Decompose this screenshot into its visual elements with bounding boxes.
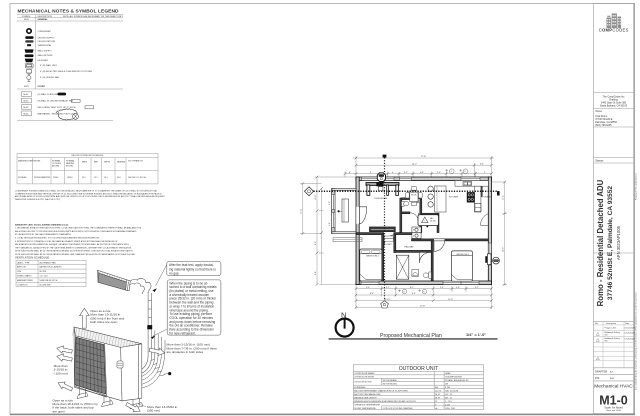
svg-text:OUTDOOR UNIT: OUTDOOR UNIT <box>399 366 438 372</box>
svg-text:70lb, 16 OZ (R): 70lb, 16 OZ (R) <box>445 390 458 392</box>
svg-text:M-04: M-04 <box>24 113 30 115</box>
svg-text:Owner: Owner <box>595 110 602 113</box>
svg-text:HSPF2: HSPF2 <box>104 162 110 164</box>
svg-text:3'-6": 3'-6" <box>329 201 331 205</box>
svg-text:THERMOSTAT: THERMOSTAT <box>38 44 53 47</box>
svg-text:27'-8": 27'-8" <box>421 156 426 158</box>
svg-text:30k BTU: 30k BTU <box>430 221 436 223</box>
svg-text:VOLT PHASE HZ: VOLT PHASE HZ <box>128 160 144 163</box>
svg-text:FURNISHED: FURNISHED <box>354 387 366 389</box>
svg-text:5'-6": 5'-6" <box>456 287 460 289</box>
svg-text:8'-2": 8'-2" <box>410 287 414 289</box>
svg-text:M-01: M-01 <box>24 94 30 96</box>
svg-text:VENTILATION SCHEDULE: VENTILATION SCHEDULE <box>15 256 49 260</box>
svg-text:Sheet size 24x36: Sheet size 24x36 <box>606 409 621 412</box>
svg-text:GREE: GREE <box>445 373 451 375</box>
svg-text:IN, FT: IN, FT <box>435 394 441 396</box>
svg-text:MODEL: MODEL <box>34 161 41 163</box>
svg-text:1/4" = 1'-0": 1/4" = 1'-0" <box>466 332 486 337</box>
svg-text:CONTROLLER BRAND: CONTROLLER BRAND <box>354 372 375 375</box>
svg-text:EACH DWELLING UNIT TO PROVIDE: EACH DWELLING UNIT TO PROVIDE WHOLE-BUIL… <box>15 230 137 233</box>
svg-text:1130 / 1136: 1130 / 1136 <box>445 408 455 410</box>
svg-text:37746 52ndSt E, Palmdale, CA 9: 37746 52ndSt E, Palmdale, CA 93552 <box>607 186 614 300</box>
svg-text:8'-2": 8'-2" <box>315 241 317 245</box>
svg-text:27'-8": 27'-8" <box>420 305 425 307</box>
svg-text:13000: 13000 <box>67 177 72 179</box>
svg-text:M-00: M-00 <box>24 19 30 21</box>
svg-text:OTHER: OTHER <box>38 86 46 88</box>
svg-text:OPERATION TEMPERATURE: OPERATION TEMPERATURE <box>354 403 380 406</box>
svg-text:P.M.: P.M. <box>595 376 600 380</box>
svg-text:M-05: M-05 <box>24 86 30 88</box>
svg-text:MANUFACTURER: MANUFACTURER <box>18 160 34 163</box>
svg-text:LIVS24HP230V1AO: LIVS24HP230V1AO <box>445 376 463 379</box>
svg-text:4" (N) CEILING FAN: 4" (N) CEILING FAN <box>40 76 59 79</box>
svg-text:14'-2": 14'-2" <box>502 247 504 252</box>
svg-text:Stamps: Stamps <box>595 160 604 163</box>
svg-text:INDOOR FIXTURE UNIT SCHEDULE: INDOOR FIXTURE UNIT SCHEDULE <box>72 155 105 157</box>
svg-text:3/8" - 25: 3/8" - 25 <box>445 397 452 399</box>
svg-text:KITCHEN: KITCHEN <box>449 197 459 199</box>
svg-text:Progress Set: Progress Set <box>605 327 617 330</box>
svg-text:RELOCATED VENT DUCT UP TO ROOF: RELOCATED VENT DUCT UP TO ROOF <box>38 106 77 109</box>
svg-text:3'-1": 3'-1" <box>386 287 390 289</box>
svg-text:9'-4": 9'-4" <box>366 287 370 289</box>
svg-text:SOUND TEMPERATURE: SOUND TEMPERATURE <box>354 407 376 410</box>
svg-text:Scale: As Noted: Scale: As Noted <box>604 405 623 409</box>
svg-text:80 CFM: 80 CFM <box>40 271 47 273</box>
svg-text:FACTORY REFRIGERANT CHARGE (FO: FACTORY REFRIGERANT CHARGE (FOR UP TO 25… <box>354 389 408 392</box>
svg-text:EER: EER <box>94 162 99 164</box>
svg-text:5 - 75 ft: 5 - 75 ft <box>445 400 452 403</box>
svg-text:3'-6": 3'-6" <box>329 222 331 226</box>
svg-text:01.26.2023: 01.26.2023 <box>625 333 636 335</box>
svg-text:12.5: 12.5 <box>94 177 98 179</box>
svg-text:No.: No. <box>595 323 599 325</box>
svg-text:MECHANICAL NOTES & SYMBOL LEGE: MECHANICAL NOTES & SYMBOL LEGEND <box>18 9 120 15</box>
svg-text:6'-8": 6'-8" <box>370 293 374 295</box>
svg-text:(N) WALL PLATFORM: (N) WALL PLATFORM <box>38 93 59 96</box>
svg-text:Building & Safety: Building & Safety <box>605 331 620 334</box>
svg-text:POLAND, BRUSHLESS DC: POLAND, BRUSHLESS DC <box>445 379 469 382</box>
svg-text:SONES / WATTS: SONES / WATTS <box>17 275 32 278</box>
svg-text:OUTDOOR MOTOR: OUTDOOR MOTOR <box>354 382 372 384</box>
svg-text:12000: 12000 <box>53 177 58 179</box>
svg-text:SYMBOL: SYMBOL <box>22 16 32 18</box>
svg-text:LABEL - TYPE: LABEL - TYPE <box>17 261 30 264</box>
svg-text:HALLWAY: HALLWAY <box>405 245 415 248</box>
svg-text:WALL SUPPLY: WALL SUPPLY <box>38 50 53 53</box>
svg-text:10'-4": 10'-4" <box>315 195 317 200</box>
svg-text:3'-5": 3'-5" <box>404 172 408 174</box>
svg-text:01.10.2023: 01.10.2023 <box>625 328 636 330</box>
svg-text:4'-6": 4'-6" <box>420 172 424 174</box>
svg-text:2. LOCAL VENTILATION REQUIRED:: 2. LOCAL VENTILATION REQUIRED: 75 TO 80 … <box>15 237 100 240</box>
svg-text:Proposed Mechanical Plan: Proposed Mechanical Plan <box>380 333 442 339</box>
svg-text:PIONEER: PIONEER <box>18 177 27 179</box>
svg-text:DESCRIPTION: DESCRIPTION <box>38 16 53 18</box>
svg-text:MOTOR MODEL: MOTOR MODEL <box>383 383 397 385</box>
svg-text:COMBINED HORIZONTAL AND VERTIC: COMBINED HORIZONTAL AND VERTICAL LENGTH … <box>15 192 162 195</box>
svg-text:CONTROLS: CONTROLS <box>17 284 28 286</box>
svg-text:CEILING SUPPLY: CEILING SUPPLY <box>38 37 56 39</box>
svg-text:32.6: 32.6 <box>117 177 121 179</box>
svg-text:MOTOR BRAND: MOTOR BRAND <box>383 379 398 382</box>
svg-text:DIFFUSER: DIFFUSER <box>38 60 49 62</box>
svg-text:13'-10": 13'-10" <box>384 299 390 301</box>
svg-text:3. INTERMITTENTLY OPERATING LO: 3. INTERMITTENTLY OPERATING LOCAL MECHAN… <box>15 240 118 243</box>
svg-text:BATHROOM & LAUNDRY: BATHROOM & LAUNDRY <box>40 266 63 269</box>
svg-text:12'-4": 12'-4" <box>448 299 453 301</box>
svg-text:for new refrigerant.: for new refrigerant. <box>169 331 195 335</box>
svg-text:SEER: SEER <box>82 162 88 164</box>
svg-text:( 100 mm): ( 100 mm) <box>54 371 68 375</box>
svg-text:208-230 V / 1 PH / 60: 208-230 V / 1 PH / 60 <box>128 177 146 179</box>
svg-text:8 TRL: 8 TRL <box>445 387 450 389</box>
svg-text:AIRFLOW: AIRFLOW <box>17 266 26 269</box>
svg-text:APN 3023AP1005: APN 3023AP1005 <box>616 225 621 260</box>
svg-text:19.5: 19.5 <box>82 177 86 179</box>
svg-text:80 CFM MIN: 80 CFM MIN <box>40 284 51 286</box>
svg-text:MANDATORY CEMC 150.0(C), ASHRA: MANDATORY CEMC 150.0(C), ASHRAE STANDARD… <box>15 223 69 226</box>
svg-text:10.5: 10.5 <box>104 177 108 179</box>
svg-text:M-02: M-02 <box>24 101 30 103</box>
svg-text:CLOSET: CLOSET <box>385 244 393 246</box>
svg-text:MINIMUM HEIGTH DIFFERENCE BETW: MINIMUM HEIGTH DIFFERENCE BETWEEN INDOOR… <box>354 400 416 403</box>
svg-text:ZW: ZW <box>445 383 448 385</box>
svg-text:NUATONE 84 FITCH: NUATONE 84 FITCH <box>40 279 58 282</box>
svg-text:62.2 AS ADOPTED BY THE CALIFOR: 62.2 AS ADOPTED BY THE CALIFORNIA ENERGY… <box>15 233 72 236</box>
svg-text:1/4" - 25: 1/4" - 25 <box>445 394 452 396</box>
svg-text:4'-2": 4'-2" <box>475 287 479 289</box>
svg-text:0-118: 0-118 <box>445 404 450 406</box>
svg-text:a.r.: a.r. <box>610 369 614 373</box>
svg-text:2'-6": 2'-6" <box>437 172 441 174</box>
svg-text:ADDITIONAL BEND OF 90 DEG. HOR: ADDITIONAL BEND OF 90 DEG. HORIZONTAL AN… <box>15 195 165 198</box>
svg-text:(E) EXHAUST FAN: (E) EXHAUST FAN <box>40 261 57 264</box>
svg-text:(BTU/H): (BTU/H) <box>66 165 73 167</box>
svg-text:Set: Set <box>605 334 608 337</box>
svg-text:OUTDOOR (COOLING / HEATING): OUTDOOR (COOLING / HEATING) <box>383 407 413 410</box>
svg-text:6'-4": 6'-4" <box>315 271 317 275</box>
svg-text:It is a violation of law for a: It is a violation of law for any person,… <box>635 292 638 390</box>
svg-text:THE STANDARD 62.2 AS ADOPTED B: THE STANDARD 62.2 AS ADOPTED BY THE CALI… <box>15 246 132 249</box>
svg-text:NOTE: ALL SYMBOLS AS NECESSARY: NOTE: ALL SYMBOLS AS NECESSARY ON THIS S… <box>63 15 124 18</box>
svg-text:24'-2": 24'-2" <box>412 163 417 165</box>
svg-text:LIVINGROOM: LIVINGROOM <box>374 198 388 200</box>
svg-text:WALL RETURN: WALL RETURN <box>38 54 53 57</box>
svg-text:FACTORY PRECHARGE LINE: FACTORY PRECHARGE LINE <box>354 393 381 396</box>
svg-text:CONTROLLER MODEL: CONTROLLER MODEL <box>354 377 374 379</box>
svg-text:(661) 789-6205: (661) 789-6205 <box>595 124 612 127</box>
svg-text:HEATING: HEATING <box>117 161 126 164</box>
svg-text:M-03: M-03 <box>24 107 30 109</box>
svg-text:1.5 / 1.40: 1.5 / 1.40 <box>40 276 48 278</box>
svg-text:Property of The CompCodes Inc: Property of The CompCodes Inc <box>635 173 638 200</box>
svg-text:db: db <box>435 408 437 410</box>
svg-text:MAINTAINED / INSTALLED FLEX DU: MAINTAINED / INSTALLED FLEX DUCT <box>38 112 76 115</box>
svg-text:Building & Safety: Building & Safety <box>605 337 620 340</box>
svg-text:a.a.: a.a. <box>610 377 615 380</box>
svg-text:17'-3": 17'-3" <box>301 209 303 214</box>
svg-text:Mechanical HVAC: Mechanical HVAC <box>594 384 633 390</box>
svg-text:STORAGE: STORAGE <box>482 196 492 199</box>
svg-text:WHEN LESS SCHEDULE 40 PVC. (EA: WHEN LESS SCHEDULE 40 PVC. (EA 4.506.2 C… <box>15 198 60 201</box>
svg-text:both sides are open: both sides are open <box>90 320 117 324</box>
svg-text:MANUFACTURER: MANUFACTURER <box>17 279 33 282</box>
svg-text:DRAFTER: DRAFTER <box>595 369 607 373</box>
svg-text:WYS012AMFI22RL: WYS012AMFI22RL <box>34 176 51 179</box>
svg-text:NOTE: EACH ROOM SHALL BE 50 CF: NOTE: EACH ROOM SHALL BE 50 CFM IN BATHR… <box>15 250 133 253</box>
svg-text:are open: are open <box>53 409 65 413</box>
svg-text:07.20.2023: 07.20.2023 <box>625 339 636 341</box>
svg-text:2'-6": 2'-6" <box>440 287 444 289</box>
svg-text:IN, FT: IN, FT <box>435 397 441 399</box>
svg-text:(BTU/H): (BTU/H) <box>52 165 59 167</box>
svg-text:Santa Barbara, CA 93105: Santa Barbara, CA 93105 <box>600 105 628 108</box>
svg-text:BEDROOM 1: BEDROOM 1 <box>457 254 470 256</box>
svg-text:no gap.: no gap. <box>169 271 180 275</box>
svg-text:CONDENSATE: FLEXIBLE DRAIN DUC: CONDENSATE: FLEXIBLE DRAIN DUCT SHALL NO… <box>15 190 157 193</box>
svg-text:GENERAL: GENERAL <box>38 18 49 21</box>
svg-text:COMPCODES: COMPCODES <box>599 28 629 33</box>
svg-text:are obstacles in both sides: are obstacles in both sides <box>167 350 204 354</box>
svg-text:4" (N) SELECTED SINGLE ZONE MI: 4" (N) SELECTED SINGLE ZONE MINI SPLIT S… <box>40 71 92 73</box>
svg-text:6'-4": 6'-4" <box>412 293 416 295</box>
svg-text:4" (N) WALL UNIT: 4" (N) WALL UNIT <box>40 64 58 67</box>
svg-text:EACH BATHROOM WITH A BATHTUB,: EACH BATHROOM WITH A BATHTUB, SHOWER, OR… <box>15 243 129 246</box>
svg-text:Description: Description <box>606 322 616 325</box>
svg-text:3'-6": 3'-6" <box>480 163 484 165</box>
svg-text:LB, OZ: LB, OZ <box>435 390 442 392</box>
svg-text:(N) WALL IN CEILING EXHAUST FA: (N) WALL IN CEILING EXHAUST FAN <box>38 100 74 103</box>
svg-text:CEILING RETURN: CEILING RETURN <box>38 41 56 43</box>
svg-text:Romo - Residential Detached AD: Romo - Residential Detached ADU <box>596 179 605 306</box>
svg-text:Set: Set <box>605 340 608 343</box>
svg-text:(350 mm): (350 mm) <box>147 409 160 413</box>
svg-text:MAXIMUM LINE LENGTH: MAXIMUM LINE LENGTH <box>354 396 377 399</box>
svg-text:11'-2": 11'-2" <box>502 195 504 200</box>
svg-text:CONDENSER: CONDENSER <box>38 31 52 33</box>
svg-text:NOOK: NOOK <box>411 195 417 197</box>
svg-text:CFM: CFM <box>17 271 22 273</box>
svg-text:BEDROOM 2: BEDROOM 2 <box>366 256 379 258</box>
svg-text:1. MECHANICAL EXHAUST VENTILAT: 1. MECHANICAL EXHAUST VENTILATION SYSTEM… <box>15 227 142 230</box>
